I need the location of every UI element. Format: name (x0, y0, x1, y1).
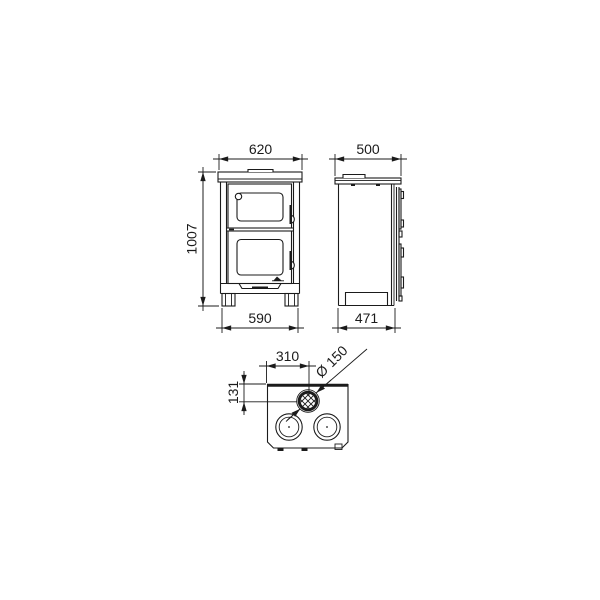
side-leg-notch (346, 293, 388, 306)
dim-flue-offset-x: 310 (276, 348, 300, 364)
dim-front-feet-width: 590 (248, 310, 272, 326)
upper-hinge-lug (401, 192, 404, 199)
front-right-leg (285, 294, 298, 307)
top-view (267, 385, 348, 452)
dim-front-height: 1007 (184, 223, 200, 254)
firebox-door-handle-bar (290, 251, 293, 270)
dim-flue-diameter: Ø 150 (312, 342, 350, 380)
dim-flue-offset-y: 131 (225, 381, 241, 405)
oven-door-handle (292, 216, 294, 224)
oven-door-handle-bar (290, 205, 293, 224)
front-top-plate (218, 172, 302, 182)
dim-side-feet-depth: 471 (355, 310, 379, 326)
side-top-ring-cover (343, 175, 365, 179)
front-view (218, 170, 302, 307)
firebox-door-handle (292, 262, 294, 270)
firebox-door-window (237, 240, 283, 276)
door-latch (274, 277, 282, 281)
lower-hinge-lug (401, 248, 404, 257)
front-left-leg (222, 294, 235, 307)
lower-hinge-lug-2 (401, 277, 404, 288)
dim-side-top-depth: 500 (356, 141, 380, 157)
air-control-knob (235, 193, 241, 199)
dim-front-top-width: 620 (249, 141, 273, 157)
drawing-canvas: 620 500 1007 590 471 310 (0, 0, 600, 600)
side-view (335, 175, 404, 306)
front-top-ring-cover (248, 170, 273, 173)
technical-drawing: 620 500 1007 590 471 310 (0, 0, 600, 600)
top-plate-outline (268, 385, 349, 449)
oven-door-window (237, 193, 283, 221)
upper-hinge-lug-2 (401, 220, 404, 227)
